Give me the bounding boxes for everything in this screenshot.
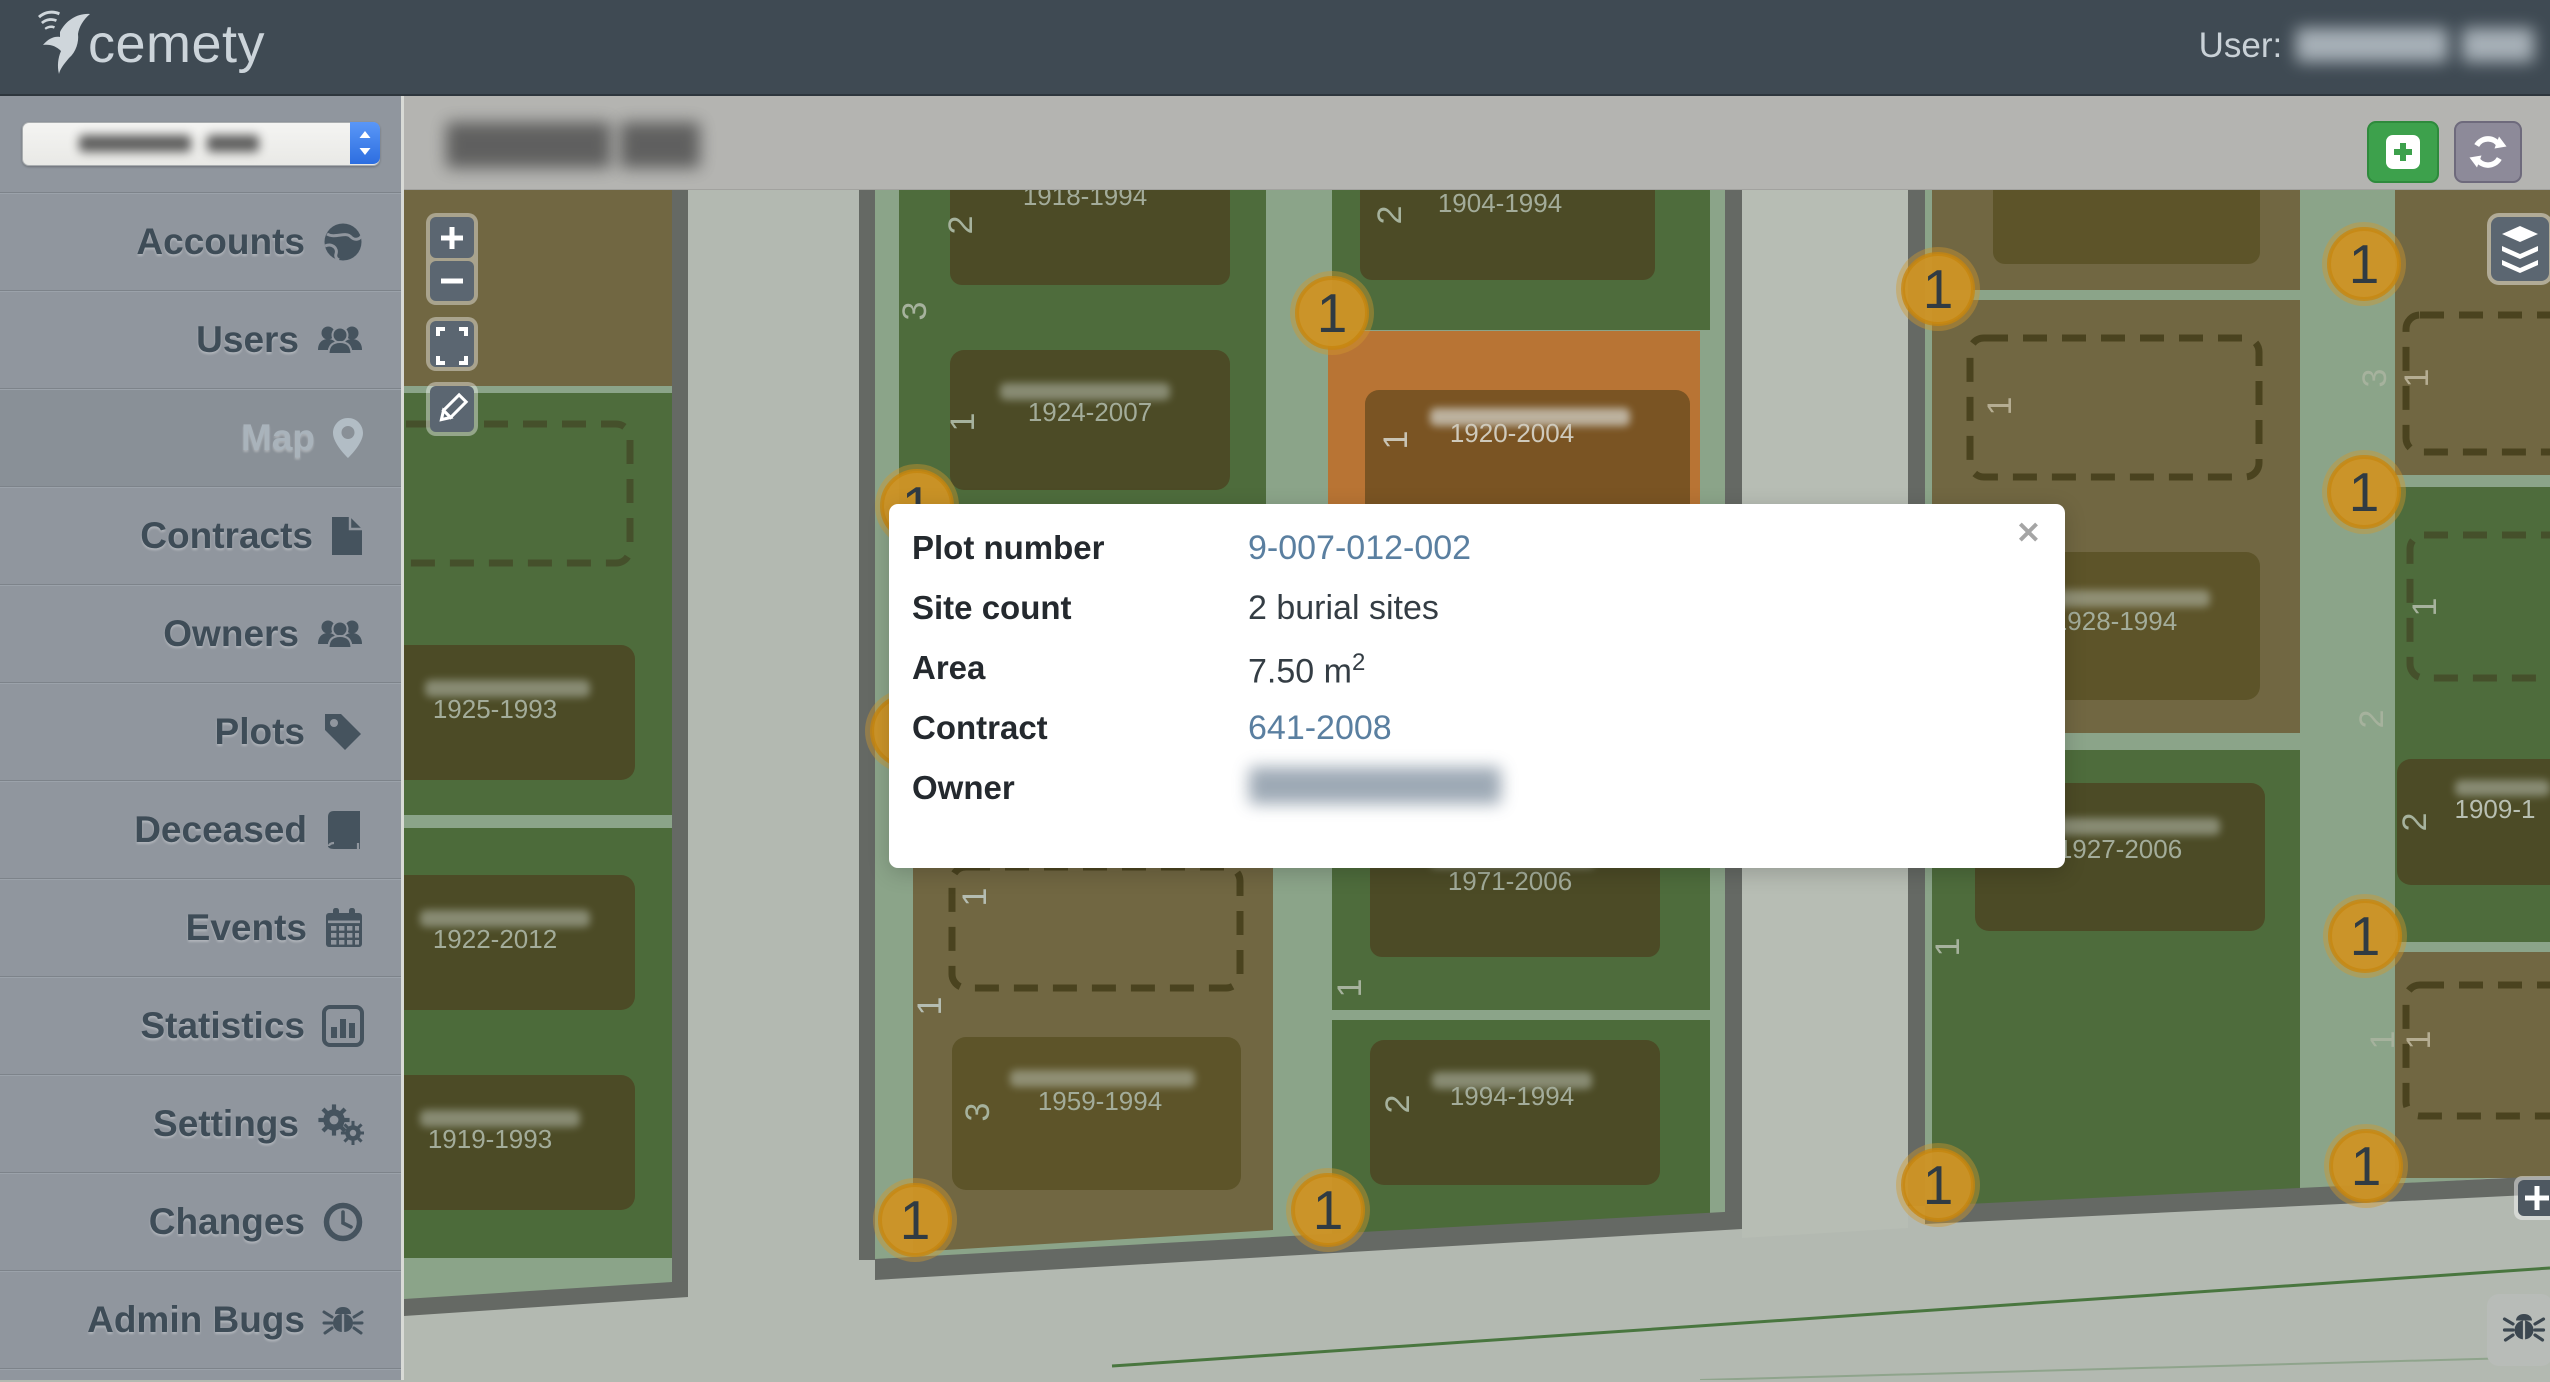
svg-text:1904-1994: 1904-1994 (1438, 190, 1562, 218)
svg-text:1924-2007: 1924-2007 (1028, 397, 1152, 427)
svg-text:1971-2006: 1971-2006 (1448, 866, 1572, 896)
svg-text:1: 1 (2349, 461, 2380, 523)
svg-text:1: 1 (900, 1189, 931, 1251)
svg-text:1959-1994: 1959-1994 (1038, 1086, 1162, 1116)
svg-text:1: 1 (1317, 282, 1348, 344)
svg-text:2: 2 (1379, 1095, 1417, 1114)
svg-text:1: 1 (1377, 431, 1415, 450)
svg-text:1: 1 (1929, 938, 1967, 957)
svg-text:2: 2 (2353, 710, 2391, 729)
svg-text:1: 1 (2400, 1031, 2438, 1050)
svg-text:2: 2 (2396, 813, 2434, 832)
svg-text:1: 1 (2398, 369, 2436, 388)
svg-text:1: 1 (944, 413, 982, 432)
svg-text:1: 1 (2406, 598, 2444, 617)
svg-text:1919-1993: 1919-1993 (428, 1124, 552, 1154)
svg-text:1920-2004: 1920-2004 (1450, 418, 1574, 448)
svg-text:1918-1994: 1918-1994 (1023, 190, 1147, 211)
svg-text:3: 3 (959, 1103, 997, 1122)
svg-text:1: 1 (956, 888, 994, 907)
svg-text:2: 2 (1371, 206, 1409, 225)
svg-text:2: 2 (942, 216, 980, 235)
svg-text:1927-2006: 1927-2006 (2058, 834, 2182, 864)
svg-text:1: 1 (2351, 1135, 2382, 1197)
svg-text:1: 1 (1981, 397, 2019, 416)
svg-text:3: 3 (896, 302, 934, 321)
svg-text:1: 1 (1313, 1179, 1344, 1241)
svg-text:1: 1 (1923, 1154, 1954, 1216)
svg-text:1: 1 (1923, 258, 1954, 320)
svg-text:1928-1994: 1928-1994 (2053, 606, 2177, 636)
svg-text:1: 1 (2350, 905, 2381, 967)
svg-text:1: 1 (911, 997, 949, 1016)
svg-text:1994-1994: 1994-1994 (1450, 1081, 1574, 1111)
svg-text:1909-1: 1909-1 (2455, 794, 2536, 824)
svg-text:3: 3 (2356, 369, 2394, 388)
svg-text:1: 1 (2364, 1031, 2402, 1050)
svg-text:1925-1993: 1925-1993 (433, 694, 557, 724)
svg-text:1922-2012: 1922-2012 (433, 924, 557, 954)
svg-text:1: 1 (2349, 233, 2380, 295)
svg-text:1: 1 (1331, 979, 1369, 998)
